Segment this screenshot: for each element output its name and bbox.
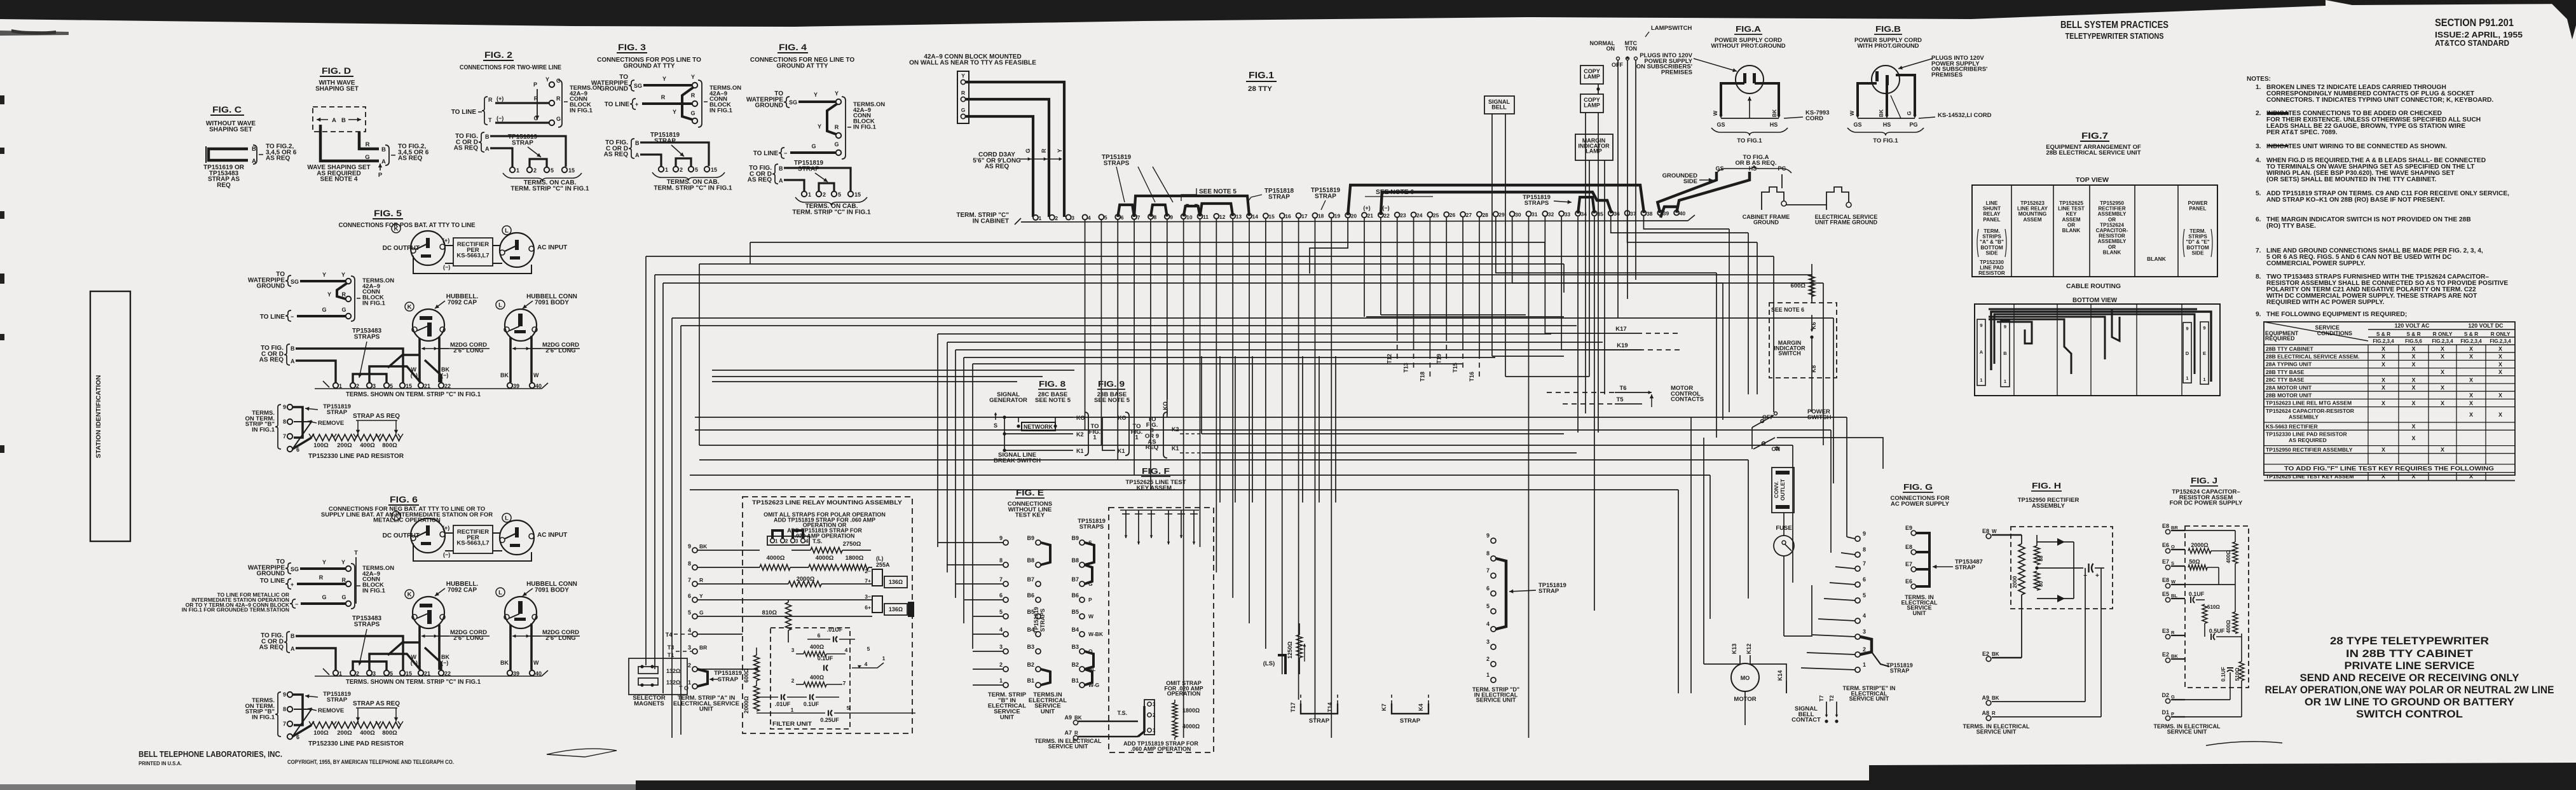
svg-text:TERMS. SHOWN ON TERM. STRIP "C: TERMS. SHOWN ON TERM. STRIP "C" IN FIG.1 [346,391,481,398]
svg-text:B7: B7 [1071,576,1079,583]
svg-text:6+: 6+ [865,604,871,611]
svg-text:TP152330 LINE PAD RESISTOR: TP152330 LINE PAD RESISTOR [308,740,404,747]
svg-text:FIG. J: FIG. J [2191,476,2217,485]
svg-text:PG: PG [1778,165,1786,172]
svg-text:A: A [381,158,386,165]
svg-text:B5: B5 [1071,609,1079,615]
svg-text:(+): (+) [442,237,449,244]
svg-text:2: 2 [688,662,691,669]
svg-text:PREMISES: PREMISES [1931,72,1963,79]
svg-text:WITHOUT PROT.GROUND: WITHOUT PROT.GROUND [1711,43,1785,50]
svg-text:4000Ω: 4000Ω [816,555,834,562]
svg-text:T5: T5 [1616,396,1624,403]
svg-text:R: R [342,291,346,298]
svg-text:K1: K1 [1076,448,1084,454]
svg-text:9: 9 [1980,322,1982,328]
svg-text:T3: T3 [668,644,675,651]
svg-text:FIG. D: FIG. D [322,66,351,76]
svg-text:A: A [635,152,640,158]
svg-text:9: 9 [2186,326,2188,331]
svg-text:AS REQ: AS REQ [985,163,1010,170]
svg-text:R ONLY: R ONLY [2433,331,2453,337]
svg-text:X: X [2381,354,2385,360]
svg-text:E9: E9 [1905,525,1912,531]
svg-text:GROUND: GROUND [600,86,628,93]
svg-text:FIG. 5: FIG. 5 [374,208,402,218]
svg-text:2: 2 [785,539,788,544]
svg-text:4: 4 [999,627,1003,633]
svg-text:8: 8 [688,560,691,567]
svg-text:CORD: CORD [1805,115,1823,122]
svg-text:X: X [2441,447,2444,453]
svg-text:STRAP: STRAP [654,137,676,144]
svg-text:600Ω: 600Ω [743,669,750,683]
svg-text:TERMS. SHOWN ON TERM. STRIP "C: TERMS. SHOWN ON TERM. STRIP "C" IN FIG.1 [346,679,481,686]
svg-text:CONNECTIONS FOR TWO-WIRE LINE: CONNECTIONS FOR TWO-WIRE LINE [460,64,561,71]
svg-text:BELL SYSTEM PRACTICES: BELL SYSTEM PRACTICES [2060,20,2168,31]
svg-text:TP152624 CAPACITOR-RESISTOR: TP152624 CAPACITOR-RESISTOR [2266,408,2355,414]
svg-text:120 VOLT AC: 120 VOLT AC [2395,322,2430,329]
svg-text:+: + [291,581,294,588]
svg-text:X: X [2381,385,2385,391]
svg-text:4: 4 [805,539,809,544]
svg-text:W: W [533,660,539,666]
svg-text:10: 10 [1186,214,1193,220]
svg-text:FILTER UNIT: FILTER UNIT [772,721,812,728]
svg-text:BOTTOM VIEW: BOTTOM VIEW [2072,297,2118,304]
svg-text:2: 2 [999,662,1003,668]
svg-text:T14: T14 [1327,702,1333,712]
svg-text:X: X [2441,400,2444,406]
svg-text:2: 2 [1055,215,1058,221]
svg-text:TO LINE: TO LINE [753,150,779,157]
svg-text:REQ: REQ [217,182,231,189]
svg-text:0.1UF: 0.1UF [818,655,833,662]
svg-text:T6: T6 [1619,385,1626,392]
svg-text:IN FIG.1: IN FIG.1 [362,300,386,307]
svg-text:LAMP: LAMP [1584,73,1600,80]
svg-text:X: X [2411,354,2415,360]
svg-text:REQUIRED: REQUIRED [2265,335,2294,342]
svg-text:T19: T19 [1435,354,1442,364]
svg-text:X: X [2469,377,2473,383]
svg-text:X: X [2381,447,2385,453]
svg-text:TO FIG.1: TO FIG.1 [1873,137,1898,144]
svg-text:X: X [2498,346,2502,352]
svg-text:E2: E2 [2162,651,2169,658]
svg-text:(+): (+) [442,525,449,531]
svg-text:PG: PG [1909,121,1917,128]
svg-text:R: R [556,95,561,102]
svg-text:5: 5 [695,167,698,173]
svg-text:R: R [691,92,695,99]
svg-text:STRAPS: STRAPS [1039,609,1046,632]
svg-text:BK: BK [1992,695,1999,701]
svg-text:136Ω: 136Ω [889,606,903,613]
svg-text:6: 6 [1863,576,1866,583]
svg-text:SIDE: SIDE [2191,250,2204,256]
svg-text:9.: 9. [2256,311,2261,318]
svg-text:1: 1 [999,677,1003,684]
svg-text:28A MOTOR UNIT: 28A MOTOR UNIT [2266,384,2312,391]
svg-text:STRAP: STRAP [1538,588,1559,595]
svg-text:G: G [341,594,346,600]
svg-text:B7: B7 [1027,576,1034,583]
svg-text:IN FIG.1: IN FIG.1 [709,107,733,114]
svg-text:K19: K19 [1617,342,1627,349]
svg-text:13: 13 [1236,214,1242,220]
svg-text:8: 8 [1863,546,1866,553]
svg-text:12: 12 [1219,214,1226,220]
svg-text:G: G [341,307,346,313]
svg-text:31: 31 [1531,211,1538,218]
svg-text:B6: B6 [1071,592,1079,599]
svg-text:2: 2 [533,167,537,174]
svg-text:AS REQ: AS REQ [604,151,629,158]
svg-text:510Ω: 510Ω [2207,604,2220,610]
svg-text:PREMISES: PREMISES [1661,69,1692,76]
svg-text:K: K [408,303,412,310]
svg-text:STRAP: STRAP [1890,667,1910,674]
svg-text:2000Ω: 2000Ω [2191,542,2208,548]
svg-text:X: X [2411,400,2415,406]
svg-text:600Ω: 600Ω [1791,282,1806,289]
svg-text:8: 8 [1153,214,1156,221]
svg-text:132Ω: 132Ω [666,679,680,686]
svg-text:FIG.2,3,4: FIG.2,3,4 [2460,338,2482,344]
svg-text:100Ω: 100Ω [313,442,329,449]
svg-text:STRAP: STRAP [1400,717,1421,724]
svg-text:9: 9 [1863,530,1866,537]
svg-text:6: 6 [1486,585,1490,592]
svg-text:FIG. C: FIG. C [212,104,242,114]
svg-text:7: 7 [283,433,286,440]
svg-text:15: 15 [711,167,717,173]
svg-text:9: 9 [688,543,691,550]
svg-text:SEE NOTE 5: SEE NOTE 5 [1199,188,1237,195]
svg-text:K7: K7 [1381,703,1387,711]
svg-text:1250Ω: 1250Ω [1287,641,1293,658]
svg-text:X: X [2381,400,2385,406]
svg-text:GROUND: GROUND [257,283,285,290]
svg-text:B3: B3 [1071,644,1079,650]
svg-text:8: 8 [283,419,286,425]
svg-text:SEE NOTE 5: SEE NOTE 5 [1094,397,1130,404]
svg-text:(RO) TTY BASE.: (RO) TTY BASE. [2266,223,2316,230]
svg-text:5: 5 [867,646,870,652]
svg-text:6.: 6. [2256,216,2261,223]
svg-text:5: 5 [551,167,554,174]
svg-text:KS-5663,L7: KS-5663,L7 [456,540,489,547]
svg-text:1: 1 [2004,378,2006,384]
svg-text:Y: Y [1057,149,1063,153]
svg-text:400Ω: 400Ω [360,730,375,737]
svg-text:28A TYPING UNIT: 28A TYPING UNIT [2266,361,2312,368]
svg-text:255A: 255A [876,562,890,568]
svg-text:7091 BODY: 7091 BODY [535,299,569,306]
svg-text:BR: BR [2171,525,2178,530]
svg-text:X: X [2498,361,2502,368]
svg-text:2: 2 [823,191,826,198]
svg-text:P: P [1088,597,1092,603]
svg-text:B: B [635,140,640,146]
svg-text:STRAP: STRAP [1268,193,1290,200]
svg-text:9: 9 [1170,214,1173,220]
svg-text:KS-5663,L7: KS-5663,L7 [456,253,489,260]
svg-text:TERM. STRIP "C" IN FIG.1: TERM. STRIP "C" IN FIG.1 [510,185,589,192]
svg-text:1: 1 [1980,377,1982,383]
svg-text:800Ω: 800Ω [382,730,397,737]
svg-text:PER AT&T SPEC. 7089.: PER AT&T SPEC. 7089. [2266,129,2338,136]
svg-text:B: B [291,345,295,352]
svg-text:FIG.5,6: FIG.5,6 [2405,338,2422,344]
svg-text:W: W [1849,110,1855,116]
svg-text:14: 14 [1252,213,1259,219]
svg-text:E8: E8 [1905,544,1912,550]
svg-text:A9: A9 [1064,714,1072,721]
svg-text:9: 9 [2203,325,2205,331]
svg-text:BK: BK [500,372,509,378]
svg-text:T: T [354,550,358,557]
svg-text:B3: B3 [1027,644,1034,650]
svg-text:X: X [2411,424,2415,430]
svg-text:RELAY OPERATION,ONE WAY POLAR: RELAY OPERATION,ONE WAY POLAR OR NEUTRAL… [2265,684,2554,696]
svg-text:Y: Y [818,123,821,130]
svg-text:9: 9 [1486,532,1490,539]
svg-text:S: S [994,422,997,429]
svg-text:E7: E7 [2162,558,2169,565]
svg-text:X: X [2381,377,2385,383]
svg-text:3.: 3. [2256,143,2261,150]
svg-text:36: 36 [1613,211,1620,217]
svg-text:200Ω: 200Ω [337,442,352,449]
svg-text:−: − [784,150,787,156]
svg-text:GROUND: GROUND [257,571,285,578]
svg-text:L: L [498,301,502,308]
svg-text:IN FIG.1 FOR GROUNDED TERM.STA: IN FIG.1 FOR GROUNDED TERM.STATION [182,607,289,613]
svg-text:AS REQ: AS REQ [266,155,291,162]
svg-text:100Ω: 100Ω [313,730,329,737]
svg-text:SWITCH CONTROL: SWITCH CONTROL [2356,708,2463,720]
svg-text:4000Ω: 4000Ω [1182,723,1200,730]
svg-text:400Ω: 400Ω [810,674,824,681]
svg-text:Y: Y [322,272,326,278]
svg-text:S & R: S & R [2406,331,2420,337]
svg-text:SECTION P91.201: SECTION P91.201 [2435,17,2514,29]
svg-text:W: W [1088,613,1094,620]
svg-text:FIG. 2: FIG. 2 [484,50,512,60]
svg-text:28C TTY BASE: 28C TTY BASE [2266,377,2305,383]
svg-text:RESISTOR: RESISTOR [1978,270,2005,276]
svg-text:SHAPING SET: SHAPING SET [209,126,252,133]
svg-text:Y: Y [341,559,345,565]
svg-text:AS REQ: AS REQ [259,357,284,364]
svg-text:K2: K2 [1076,431,1084,438]
svg-text:7: 7 [1137,214,1141,221]
svg-text:132Ω: 132Ω [666,668,680,674]
svg-text:G: G [690,110,695,116]
svg-text:E5: E5 [2162,591,2169,597]
svg-text:800Ω: 800Ω [382,442,397,449]
svg-text:(OR SETS) SHALL BE MOUNTED: (OR SETS) SHALL BE MOUNTED IN THE TTY CA… [2266,176,2437,183]
svg-text:B1: B1 [1071,677,1079,684]
svg-text:G: G [556,116,561,122]
svg-text:X: X [2441,369,2444,375]
svg-text:K2: K2 [1172,426,1179,433]
svg-text:BELL TELEPHONE LABORATORIES, I: BELL TELEPHONE LABORATORIES, INC. [139,750,282,759]
svg-text:K17: K17 [1615,326,1626,333]
svg-text:PANEL: PANEL [1983,217,2000,223]
svg-text:2.: 2. [2256,110,2261,117]
svg-text:27: 27 [1466,212,1472,218]
svg-text:IN 28B TTY CABINET: IN 28B TTY CABINET [2346,648,2474,660]
svg-text:STRAP: STRAP [1309,717,1330,724]
svg-text:400Ω: 400Ω [2225,550,2231,563]
svg-text:(+): (+) [1363,205,1370,211]
svg-text:16: 16 [1285,213,1291,219]
svg-text:LAMP: LAMP [1584,102,1600,108]
svg-text:TP152330 LINE PAD RESISTOR: TP152330 LINE PAD RESISTOR [2266,431,2347,438]
svg-text:3: 3 [791,647,795,653]
svg-text:Y: Y [814,92,818,98]
svg-text:8: 8 [1486,550,1490,557]
svg-text:X: X [2381,361,2385,368]
svg-text:120 VOLT DC: 120 VOLT DC [2468,322,2504,329]
svg-text:1.: 1. [2256,84,2261,91]
svg-text:1: 1 [1486,672,1490,678]
svg-text:22: 22 [1383,212,1390,219]
svg-text:THE FOLLOWING EQUIPMENT IS: THE FOLLOWING EQUIPMENT IS REQUIRED; [2266,311,2407,318]
svg-text:8: 8 [999,557,1003,564]
svg-text:AC POWER SUPPLY: AC POWER SUPPLY [1891,501,1950,508]
svg-text:1: 1 [2186,375,2188,381]
svg-text:TP152950 RECTIFIER ASSEMBLY: TP152950 RECTIFIER ASSEMBLY [2266,447,2353,453]
svg-text:STRAP: STRAP [512,139,533,146]
svg-text:0.1UF: 0.1UF [2220,667,2226,681]
svg-text:15: 15 [568,167,575,174]
svg-text:4000Ω: 4000Ω [767,555,785,562]
svg-text:A: A [485,146,490,152]
svg-text:FIG. 8: FIG. 8 [1039,379,1065,389]
svg-text:R: R [661,94,666,100]
svg-text:1: 1 [1863,662,1866,668]
svg-text:2: 2 [680,167,683,173]
svg-text:24: 24 [1416,212,1423,219]
svg-text:7: 7 [283,721,286,727]
svg-text:UNIT: UNIT [1913,610,1926,616]
svg-text:X: X [2469,412,2473,418]
svg-text:1: 1 [808,191,811,198]
svg-text:5: 5 [688,609,691,616]
svg-text:CONTACT: CONTACT [1792,717,1821,724]
svg-text:CONNECTORS. T INDICATES TYP: CONNECTORS. T INDICATES TYPING UNIT CONN… [2266,97,2493,104]
svg-text:2000: 2000 [2011,576,2018,588]
svg-text:G: G [1025,148,1031,153]
svg-text:GROUND: GROUND [755,102,783,109]
svg-text:X: X [2441,385,2444,391]
svg-text:SWITCH: SWITCH [1778,350,1801,357]
svg-text:AS REQ: AS REQ [748,177,772,184]
svg-text:2−: 2− [865,568,871,574]
svg-text:3: 3 [795,539,798,544]
svg-text:TON: TON [1625,45,1637,52]
svg-text:X: X [2498,412,2502,418]
svg-text:BLANK: BLANK [2147,256,2167,262]
svg-text:STRAPS: STRAPS [1079,523,1104,530]
svg-text:UNIT: UNIT [1041,709,1055,716]
svg-text:STRAPS: STRAPS [354,333,380,340]
svg-text:G: G [811,143,816,149]
svg-text:S & R: S & R [2464,331,2478,337]
svg-text:X: X [2498,392,2502,399]
svg-text:Y: Y [322,559,326,565]
svg-text:TO LINE: TO LINE [260,578,285,585]
svg-text:26: 26 [1449,212,1456,218]
svg-text:SG: SG [291,279,299,285]
svg-text:R: R [699,577,703,583]
svg-text:9: 9 [999,535,1003,541]
svg-text:S: S [2171,560,2174,566]
svg-text:BLANK: BLANK [2062,228,2081,233]
svg-text:6: 6 [818,632,821,639]
svg-text:T17: T17 [1290,702,1296,712]
svg-text:KS-5663 RECTIFIER: KS-5663 RECTIFIER [2266,423,2318,429]
svg-text:28 TTY: 28 TTY [1248,85,1273,93]
svg-text:1800Ω: 1800Ω [1182,707,1200,714]
svg-text:(L): (L) [876,555,884,562]
svg-text:BK: BK [699,543,708,550]
svg-text:5: 5 [838,191,841,198]
svg-text:B: B [291,633,295,639]
svg-text:T13: T13 [1403,363,1409,373]
svg-text:E6: E6 [1905,578,1912,585]
svg-text:TP152623 LINE REL MTG ASSEM: TP152623 LINE REL MTG ASSEM [2266,400,2352,406]
svg-text:MAGNETS: MAGNETS [634,700,664,707]
svg-text:5: 5 [999,609,1003,615]
svg-text:28: 28 [1482,212,1488,218]
svg-text:GROUND AT TTY: GROUND AT TTY [776,62,828,69]
svg-text:FIG. G: FIG. G [1903,482,1933,492]
svg-text:TOP VIEW: TOP VIEW [2076,177,2109,184]
svg-text:7: 7 [1863,560,1866,567]
svg-text:5: 5 [1104,214,1107,221]
svg-text:30: 30 [1515,211,1521,218]
svg-text:SEE NOTE 4: SEE NOTE 4 [320,176,358,183]
svg-text:K1: K1 [1118,448,1125,454]
svg-text:23: 23 [1400,212,1406,219]
svg-text:T O: T O [679,685,689,691]
svg-text:IN FIG.1: IN FIG.1 [570,107,593,114]
svg-text:17: 17 [1301,213,1308,219]
svg-text:B1: B1 [1027,677,1034,684]
svg-text:G: G [2171,694,2175,700]
svg-text:UNIT: UNIT [1000,714,1014,721]
svg-text:A: A [332,117,336,124]
svg-text:X: X [2381,473,2385,480]
svg-text:GS: GS [1715,165,1723,172]
svg-text:Y: Y [673,109,676,115]
svg-text:R: R [1992,710,1996,716]
svg-text:IN FIG.1: IN FIG.1 [853,123,877,130]
svg-text:0.25UF: 0.25UF [820,717,839,723]
svg-text:KEY ASSEM .: KEY ASSEM . [1137,485,1175,492]
svg-text:STRAP AS REQ: STRAP AS REQ [353,413,400,420]
svg-text:3: 3 [999,644,1003,650]
svg-text:SWITCH: SWITCH [1807,414,1832,421]
svg-text:FIG. F: FIG. F [1142,466,1170,476]
svg-text:KO: KO [1118,415,1127,421]
svg-text:AS REQ: AS REQ [454,145,479,152]
